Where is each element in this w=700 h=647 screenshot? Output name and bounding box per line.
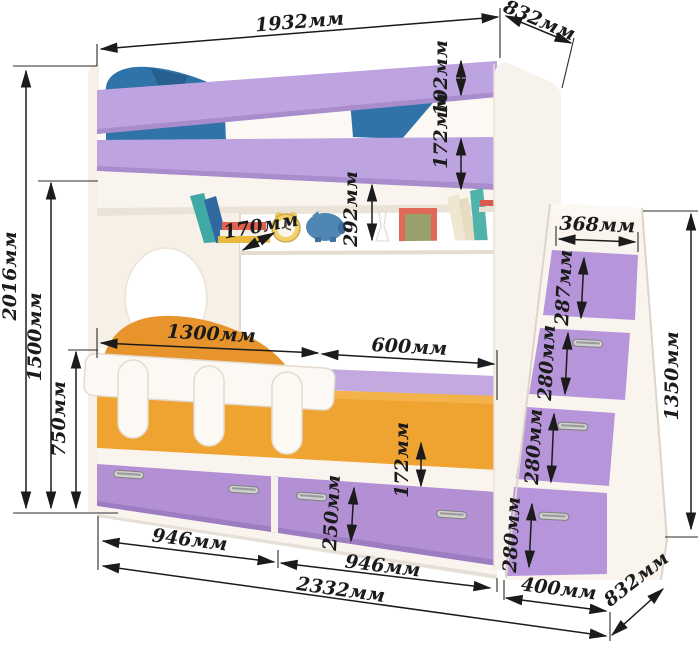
dim-base-panel-label: 172мм bbox=[391, 422, 413, 498]
dim-top-depth-label: 832мм bbox=[499, 0, 578, 45]
dim-top-length-label: 1932мм bbox=[254, 8, 344, 37]
guard-rail-post bbox=[272, 372, 302, 454]
dim-step4-label: 280мм bbox=[499, 496, 525, 574]
stair-handle bbox=[573, 339, 603, 348]
drawer-handle bbox=[114, 470, 144, 479]
guard-rail-post bbox=[118, 360, 148, 438]
extension-line bbox=[562, 38, 574, 88]
drawer-handle bbox=[437, 510, 467, 519]
dim-guard-height-label: 750мм bbox=[48, 381, 70, 457]
guard-rail-post bbox=[194, 366, 224, 446]
drawer-divider bbox=[271, 476, 278, 533]
dim-lower-rail-label: 172мм bbox=[430, 93, 452, 169]
dim-shelf-opening-label: 292мм bbox=[340, 171, 362, 248]
stair-handle bbox=[539, 512, 569, 521]
candlestick bbox=[376, 212, 389, 241]
dim-total-length-label: 2332мм bbox=[294, 573, 386, 607]
dim-end-section-label: 600мм bbox=[371, 334, 448, 360]
dim-stair-height-label: 1350мм bbox=[661, 331, 683, 420]
bunk-bed-dimension-diagram: 1932мм 832мм 102мм 172мм 2016мм 1500мм 7… bbox=[0, 0, 700, 647]
dim-stair-top-width-label: 368мм bbox=[559, 213, 636, 238]
dim-bed-section-label: 1300мм bbox=[166, 321, 256, 348]
dim-total-height-label: 2016мм bbox=[0, 231, 21, 321]
drawer-handle bbox=[229, 485, 259, 494]
stair-handle bbox=[558, 422, 588, 431]
dim-upper-bed-height-label: 1500мм bbox=[24, 292, 46, 381]
dim-step3-label: 280мм bbox=[521, 408, 547, 486]
dim-step1-label: 287мм bbox=[551, 249, 577, 327]
dim-step2-label: 280мм bbox=[534, 324, 560, 402]
dim-drawer-height-label: 250мм bbox=[319, 474, 345, 552]
